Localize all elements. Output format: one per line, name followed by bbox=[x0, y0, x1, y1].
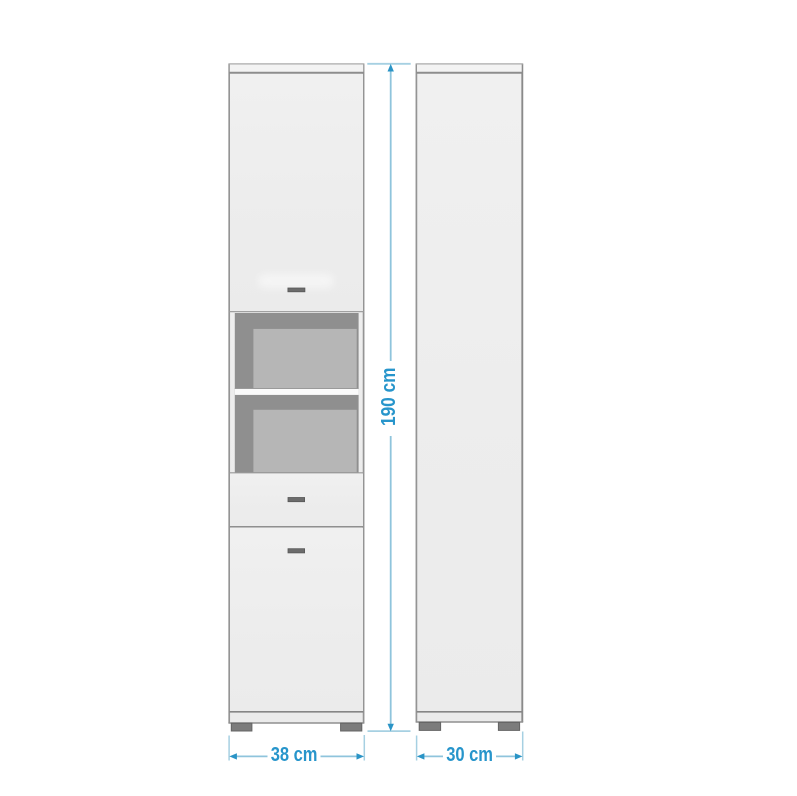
svg-text:30 cm: 30 cm bbox=[446, 743, 493, 766]
svg-text:190 cm: 190 cm bbox=[377, 368, 400, 427]
svg-text:38 cm: 38 cm bbox=[271, 743, 318, 766]
